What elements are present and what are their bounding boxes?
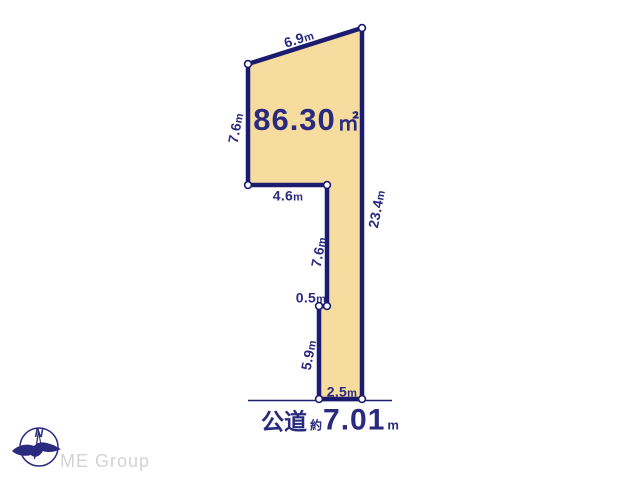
dimension-unit: m [316, 294, 326, 306]
dimension-unit: m [316, 236, 330, 248]
dimension-unit: m [306, 339, 320, 351]
vertex-dot [316, 396, 323, 403]
area-value: 86.30 [253, 102, 336, 138]
vertex-dot [359, 396, 366, 403]
compass-north-label: N [35, 426, 44, 440]
road-width-value: 7.01 [323, 404, 385, 438]
dimension-value: 4.6 [273, 188, 293, 204]
dimension-unit: m [347, 388, 357, 400]
road-width-unit: m [387, 418, 399, 433]
area-label: 86.30 ㎡ [253, 102, 359, 138]
compass-icon: N [12, 426, 61, 466]
dimension-value: 0.5 [296, 290, 316, 306]
logo-text: ME Group [60, 451, 150, 472]
dimension-unit: m [233, 112, 247, 124]
vertex-dot [245, 182, 252, 189]
dimension-bottom-edge: 2.5m [327, 385, 357, 400]
dimension-step-edge: 0.5m [296, 291, 326, 306]
road-approx: 約 [310, 417, 322, 434]
road-label: 公道 約 7.01 m [261, 403, 399, 438]
dimension-unit: m [374, 189, 388, 201]
compass-bird-shape [12, 442, 61, 456]
land-plot-diagram: N 86.30 ㎡ 6.9m 7.6m 4.6m 23.4m 7.6m 0.5m… [0, 0, 640, 480]
area-unit: ㎡ [338, 107, 359, 137]
road-type: 公道 [261, 403, 307, 437]
dimension-inner-horizontal-edge: 4.6m [273, 189, 303, 204]
vertex-dot [324, 182, 331, 189]
dimension-value: 2.5 [327, 384, 347, 400]
vertex-dot [359, 25, 366, 32]
vertex-dot [245, 61, 252, 68]
dimension-unit: m [293, 192, 303, 204]
